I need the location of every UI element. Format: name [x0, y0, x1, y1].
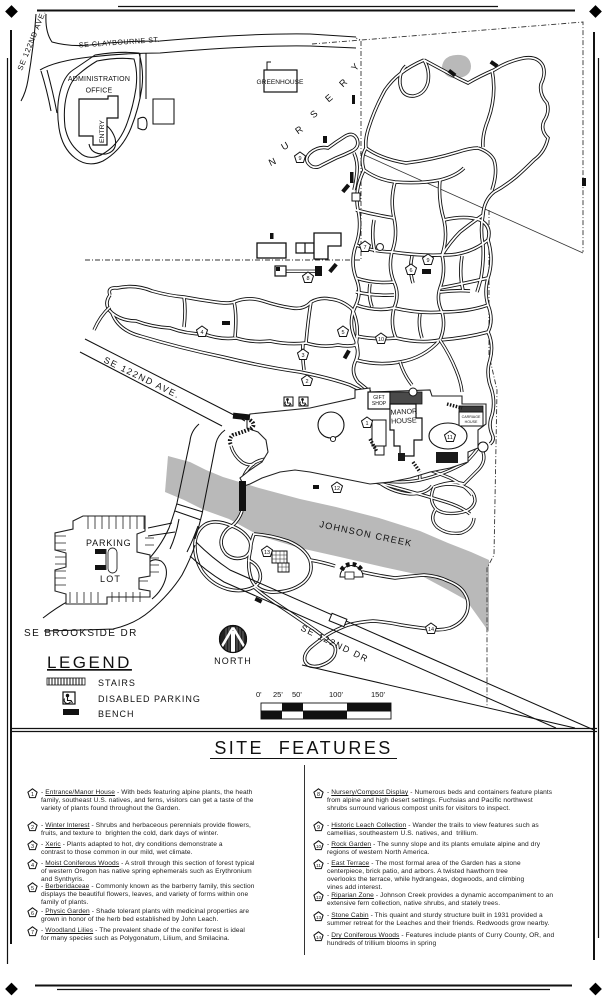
svg-text:SHOP: SHOP	[372, 401, 387, 407]
svg-text:LOT: LOT	[100, 574, 121, 584]
svg-text:3: 3	[301, 353, 304, 359]
svg-text:Y: Y	[349, 61, 362, 73]
svg-text:NORTH: NORTH	[214, 656, 252, 666]
svg-text:50': 50'	[292, 690, 302, 699]
svg-text:U: U	[280, 140, 292, 153]
svg-text:CARRIAGE: CARRIAGE	[462, 415, 481, 419]
svg-text:HOUSE: HOUSE	[391, 415, 417, 425]
svg-text:13: 13	[264, 550, 270, 556]
svg-text:9: 9	[298, 156, 301, 162]
svg-text:1: 1	[365, 421, 368, 427]
svg-text:14: 14	[316, 935, 322, 940]
svg-text:N: N	[267, 156, 278, 169]
svg-text:STAIRS: STAIRS	[98, 678, 136, 688]
svg-text:R: R	[293, 124, 305, 137]
svg-text:OFFICE: OFFICE	[86, 88, 113, 95]
svg-text:SE 122ND AVE.: SE 122ND AVE.	[16, 9, 48, 72]
svg-text:SE 122ND AVE.: SE 122ND AVE.	[102, 355, 182, 401]
svg-text:4: 4	[200, 330, 203, 336]
svg-text:12: 12	[316, 895, 322, 900]
svg-text:E: E	[323, 92, 335, 105]
svg-text:7: 7	[31, 930, 34, 936]
svg-text:4: 4	[31, 863, 34, 869]
svg-text:3: 3	[31, 844, 34, 850]
svg-text:1: 1	[31, 792, 34, 798]
svg-text:2: 2	[305, 379, 308, 385]
svg-text:5: 5	[31, 886, 34, 892]
svg-text:12: 12	[334, 486, 340, 492]
svg-text:PARKING: PARKING	[86, 538, 131, 548]
svg-text:R: R	[337, 77, 350, 90]
svg-text:LEGEND: LEGEND	[47, 653, 132, 672]
svg-text:ENTRY: ENTRY	[99, 120, 106, 143]
svg-text:DISABLED PARKING: DISABLED PARKING	[98, 694, 201, 704]
svg-text:11: 11	[316, 863, 321, 868]
svg-text:13: 13	[316, 915, 322, 920]
svg-text:7: 7	[363, 245, 366, 251]
svg-text:GREENHOUSE: GREENHOUSE	[257, 79, 304, 86]
svg-text:BENCH: BENCH	[98, 709, 135, 719]
svg-text:11: 11	[447, 435, 453, 441]
svg-text:10: 10	[378, 337, 384, 343]
svg-text:150': 150'	[371, 690, 386, 699]
svg-text:10: 10	[316, 844, 322, 849]
svg-text:ADMINISTRATION: ADMINISTRATION	[68, 76, 130, 83]
svg-text:6: 6	[409, 268, 412, 274]
svg-text:6: 6	[31, 911, 34, 917]
svg-text:S: S	[308, 108, 320, 121]
svg-text:HOUSE: HOUSE	[465, 420, 478, 424]
svg-text:14: 14	[428, 627, 434, 633]
svg-text:8: 8	[306, 276, 309, 282]
svg-text:100': 100'	[329, 690, 344, 699]
svg-text:0': 0'	[256, 690, 262, 699]
svg-text:8: 8	[317, 792, 320, 798]
svg-text:9: 9	[426, 258, 429, 264]
svg-text:2: 2	[31, 825, 34, 831]
svg-text:SE BROOKSIDE DR: SE BROOKSIDE DR	[24, 628, 138, 639]
svg-text:9: 9	[317, 825, 320, 831]
svg-text:25': 25'	[273, 690, 283, 699]
svg-text:5: 5	[341, 330, 344, 336]
svg-text:SE CLAYBOURNE ST.: SE CLAYBOURNE ST.	[79, 35, 161, 50]
